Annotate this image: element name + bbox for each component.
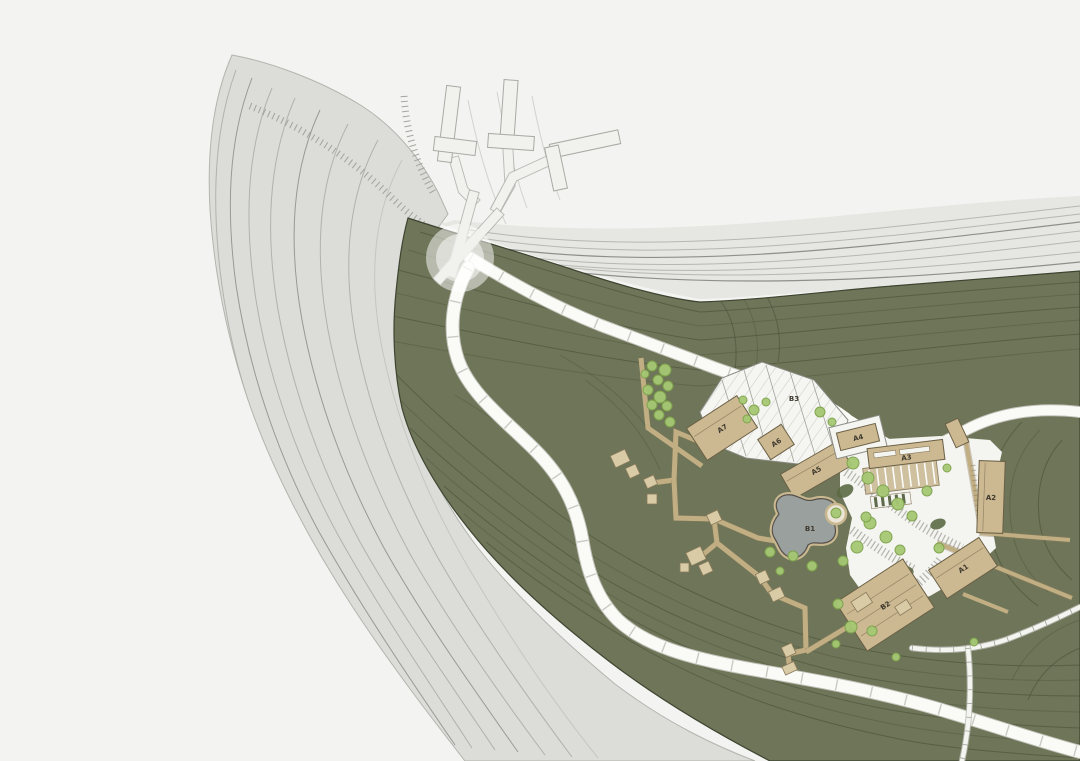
- site-plan-canvas: B3 A7 A6 A5 A4 A3 A2: [0, 0, 1080, 761]
- building-label-b3: B3: [789, 395, 799, 403]
- pool-label-b1: B1: [805, 525, 815, 533]
- building-label-a3: A3: [901, 453, 912, 462]
- site-plan: B3 A7 A6 A5 A4 A3 A2: [0, 0, 1080, 761]
- building-a2: A2: [977, 461, 1005, 534]
- building-label-a2: A2: [986, 494, 997, 502]
